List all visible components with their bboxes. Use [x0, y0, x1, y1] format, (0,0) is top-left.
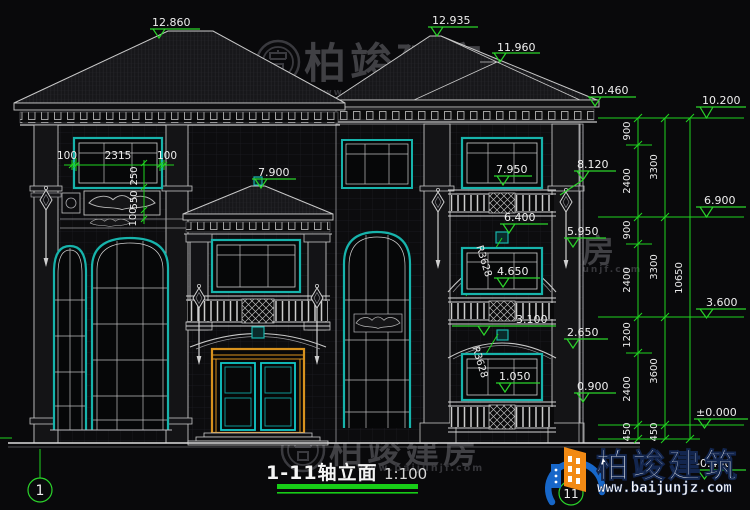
stair-bay: [342, 140, 412, 428]
elevation-label: 1.050: [499, 370, 531, 383]
balcony-floor3: [448, 190, 556, 216]
chain-dim: 900: [622, 121, 633, 140]
dim-label: 550: [129, 190, 140, 209]
window-floor2-center: [212, 240, 300, 292]
pilaster: [166, 125, 188, 443]
tall-arched-window: [344, 232, 410, 428]
chain-dim: 2400: [622, 168, 633, 193]
elevation-label: 6.400: [504, 211, 536, 224]
axis-marker-1: 1: [28, 449, 52, 502]
elevation-label: 3.100: [516, 313, 548, 326]
logo-url-text: www.baijunjz.com: [597, 480, 732, 496]
dim-label: 100: [57, 150, 77, 162]
elevation-label: 5.950: [567, 225, 599, 238]
chain-dim: 450: [649, 422, 660, 441]
drawing-scale: 1:100: [384, 465, 427, 483]
chain-dim: 2400: [622, 267, 633, 292]
chain-total-dim: 10650: [674, 262, 685, 294]
drawing-title: 1-11轴立面: [266, 461, 378, 484]
chain-dim: 3300: [649, 154, 660, 179]
elevation-label: 12.860: [152, 16, 191, 29]
pilaster: [552, 124, 580, 443]
chain-dim: 3600: [649, 358, 660, 383]
logo-tower-dots: [555, 469, 558, 484]
elevation-label: 12.935: [432, 14, 471, 27]
title-underline: [277, 484, 418, 489]
elevation-label: 10.200: [702, 94, 741, 107]
railing-ornament: [489, 301, 515, 321]
elevation-label: ±0.000: [696, 406, 737, 419]
arched-window-wide: [92, 238, 168, 430]
elevation-label: 7.900: [258, 166, 290, 179]
level-markers: 10.200 6.900 3.600 ±0.000 -0.450: [694, 94, 748, 479]
elevation-label: 7.950: [496, 163, 528, 176]
balcony-center: [186, 296, 330, 326]
dim-label: 100: [157, 150, 177, 162]
dimension-chains: 900 2400 900 2400 1200 2400 450 3300 330…: [598, 114, 744, 443]
left-roof: [14, 31, 345, 125]
elevation-label: 0.900: [577, 380, 609, 393]
chain-dim: 1200: [622, 322, 633, 347]
dim-label: 100: [128, 207, 139, 226]
keystone: [496, 232, 508, 243]
logo-building-icon: [564, 447, 586, 492]
window-floor3-bay: [342, 140, 412, 188]
chain-dim: 3300: [649, 254, 660, 279]
entrance-door: [212, 349, 304, 433]
chain-dim: 450: [622, 422, 633, 441]
building-elevation: [0, 31, 640, 447]
railing-ornament: [489, 405, 515, 429]
elevation-label: 2.650: [567, 326, 599, 339]
cad-drawing-canvas: 柏竣建房 www.baijunjf.com 柏竣建房 www.baijunjf.…: [0, 0, 750, 510]
keystone: [497, 330, 508, 340]
railing-ornament: [489, 193, 515, 213]
elevation-label: 6.900: [704, 194, 736, 207]
elevation-label: 3.600: [706, 296, 738, 309]
dim-label: 250: [129, 166, 140, 185]
left-wing: [30, 125, 192, 443]
railing-ornament: [242, 299, 274, 323]
balcony-floor1: [448, 402, 556, 432]
elevation-label: 11.960: [497, 41, 536, 54]
title-underline-thin: [277, 492, 418, 494]
title-block: 1-11轴立面 1:100: [266, 461, 427, 494]
elevation-label: 8.120: [577, 158, 609, 171]
elevation-label: 4.650: [497, 265, 529, 278]
chain-dim: 2400: [622, 376, 633, 401]
axis-number: 1: [36, 483, 45, 499]
dim-label: 2315: [105, 150, 132, 162]
chain-dim: 900: [622, 220, 633, 239]
pilaster: [424, 124, 450, 443]
elevation-label: 10.460: [590, 84, 629, 97]
arched-window-narrow: [54, 246, 86, 430]
elevation-drawing: 柏竣建房 www.baijunjf.com 柏竣建房 www.baijunjf.…: [0, 0, 750, 510]
keystone: [252, 327, 264, 338]
window-floor2-left: [74, 138, 162, 188]
